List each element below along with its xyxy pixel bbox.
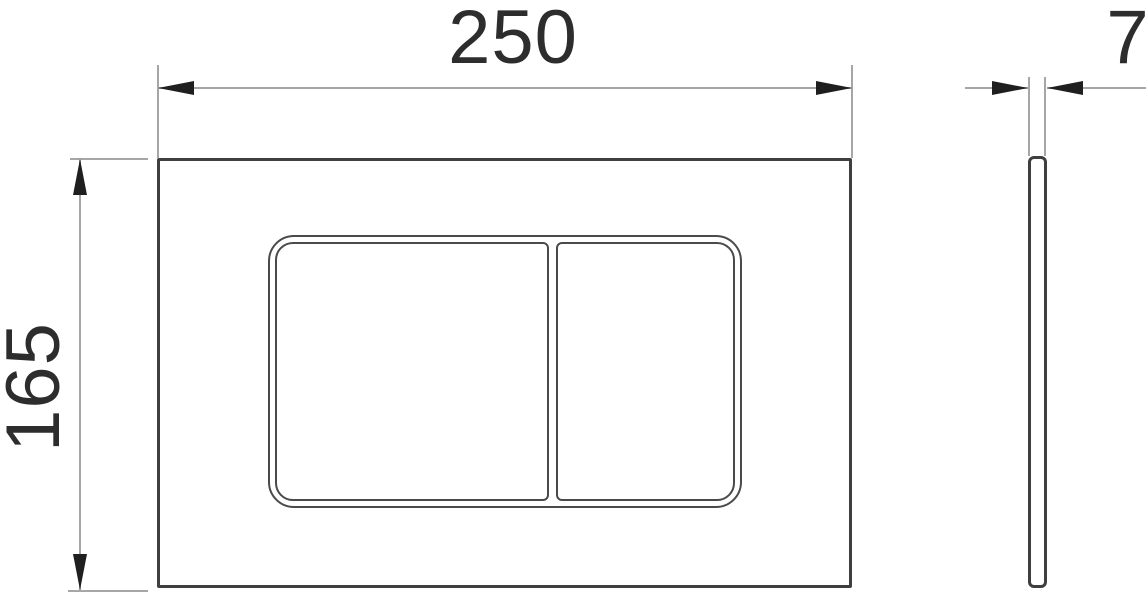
thickness-arrowhead-right: [1047, 81, 1083, 95]
width-arrowhead-right: [816, 81, 852, 95]
height-dimension-line: [79, 159, 81, 590]
front-view-plate-outline: [157, 158, 852, 588]
thickness-extension-line-left: [1028, 77, 1030, 156]
flush-button-group-outline: [268, 235, 742, 508]
thickness-extension-line-right: [1044, 77, 1046, 156]
width-witness-line-left: [157, 65, 159, 158]
technical-drawing-canvas: 250 165 7: [0, 0, 1148, 600]
thickness-dimension-label: 7: [1088, 0, 1148, 76]
width-dimension-line: [158, 87, 852, 89]
height-dimension-label: 165: [0, 287, 72, 487]
small-flush-button: [556, 242, 735, 501]
height-witness-line-bottom: [68, 590, 148, 592]
height-arrowhead-bottom: [73, 554, 87, 590]
side-view-plate-profile: [1028, 156, 1047, 588]
thickness-arrowhead-left: [992, 81, 1028, 95]
width-dimension-label: 250: [413, 0, 613, 76]
large-flush-button: [275, 242, 549, 501]
height-arrowhead-top: [73, 159, 87, 195]
width-witness-line-right: [851, 65, 853, 158]
width-arrowhead-left: [158, 81, 194, 95]
